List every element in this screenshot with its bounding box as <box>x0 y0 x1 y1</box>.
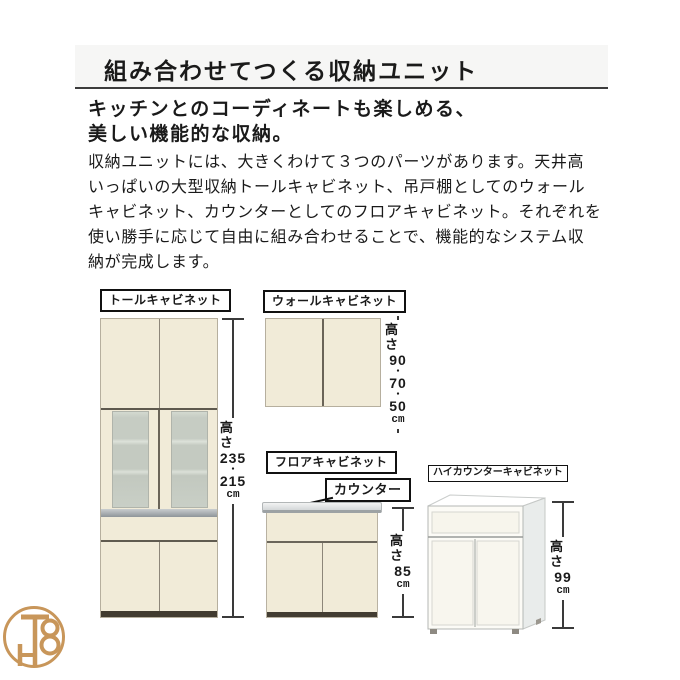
tall-height-measure: 高さ 235 ・ 215 cm <box>220 318 246 618</box>
measure-value: 50 <box>389 398 407 414</box>
wall-height-measure: 高さ 90 ・ 70 ・ 50 cm <box>385 316 411 408</box>
tall-cabinet-label: トールキャビネット <box>100 289 231 312</box>
floor-cabinet-drawer <box>267 513 377 543</box>
measure-separator: ・ <box>229 466 238 473</box>
measure-unit: cm <box>226 489 239 502</box>
high-counter-cabinet-illustration <box>424 490 558 636</box>
measure-prefix: 高さ <box>385 322 411 352</box>
body-line-4: 使い勝手に応じて自由に組み合わせることで、機能的なシステム収 <box>88 225 608 250</box>
tall-cabinet-lower-doors <box>101 542 217 611</box>
measure-separator: ・ <box>393 368 402 375</box>
body-line-2: いっぱいの大型収納トールキャビネット、吊戸棚としてのウォール <box>88 175 608 200</box>
floor-height-measure: 高さ 85 cm <box>390 507 416 618</box>
tall-cabinet-counter-strip <box>101 509 217 517</box>
subtitle-line-2: 美しい機能的な収納。 <box>88 122 476 147</box>
body-line-3: キャビネット、カウンターとしてのフロアキャビネット。それぞれを <box>88 200 608 225</box>
measure-prefix: 高さ <box>550 539 576 569</box>
body-paragraph: 収納ユニットには、大きくわけて３つのパーツがあります。天井高 いっぱいの大型収納… <box>88 150 608 275</box>
subtitle-line-1: キッチンとのコーディネートも楽しめる、 <box>88 97 476 122</box>
tall-cabinet-base <box>101 611 217 617</box>
counter-label: カウンター <box>325 478 411 502</box>
measure-unit: cm <box>391 414 404 427</box>
tall-cabinet-drawer <box>101 517 217 542</box>
brand-watermark-icon <box>1 604 67 670</box>
measure-value: 85 <box>394 563 412 579</box>
high-counter-cabinet-label: ハイカウンターキャビネット <box>428 465 568 482</box>
floor-cabinet-label: フロアキャビネット <box>266 451 397 474</box>
glass-pane-left <box>112 411 149 508</box>
measure-separator: ・ <box>393 391 402 398</box>
wall-cabinet-illustration <box>265 318 381 407</box>
measure-prefix: 高さ <box>220 420 246 450</box>
floor-cabinet-doors <box>267 543 377 612</box>
floor-cabinet-illustration <box>262 502 382 618</box>
glass-pane-right <box>171 411 208 508</box>
measure-prefix: 高さ <box>390 533 416 563</box>
tall-cabinet-illustration <box>100 318 218 618</box>
measure-unit: cm <box>396 579 409 592</box>
page-subtitle: キッチンとのコーディネートも楽しめる、 美しい機能的な収納。 <box>88 97 476 147</box>
tall-cabinet-upper-doors <box>101 319 217 408</box>
catalog-page: 組み合わせてつくる収納ユニット キッチンとのコーディネートも楽しめる、 美しい機… <box>0 0 680 680</box>
floor-cabinet-base <box>267 612 377 617</box>
page-title-band: 組み合わせてつくる収納ユニット <box>75 45 608 89</box>
wall-cabinet-label: ウォールキャビネット <box>263 290 406 313</box>
measure-value: 99 <box>554 569 572 585</box>
page-title: 組み合わせてつくる収納ユニット <box>104 52 478 86</box>
tall-cabinet-glass-doors <box>101 408 217 509</box>
floor-cabinet-countertop <box>262 502 382 513</box>
body-line-1: 収納ユニットには、大きくわけて３つのパーツがあります。天井高 <box>88 150 608 175</box>
measure-unit: cm <box>556 585 569 598</box>
body-line-5: 納が完成します。 <box>88 250 608 275</box>
measure-value: 215 <box>220 473 246 489</box>
high-counter-height-measure: 高さ 99 cm <box>550 501 576 629</box>
